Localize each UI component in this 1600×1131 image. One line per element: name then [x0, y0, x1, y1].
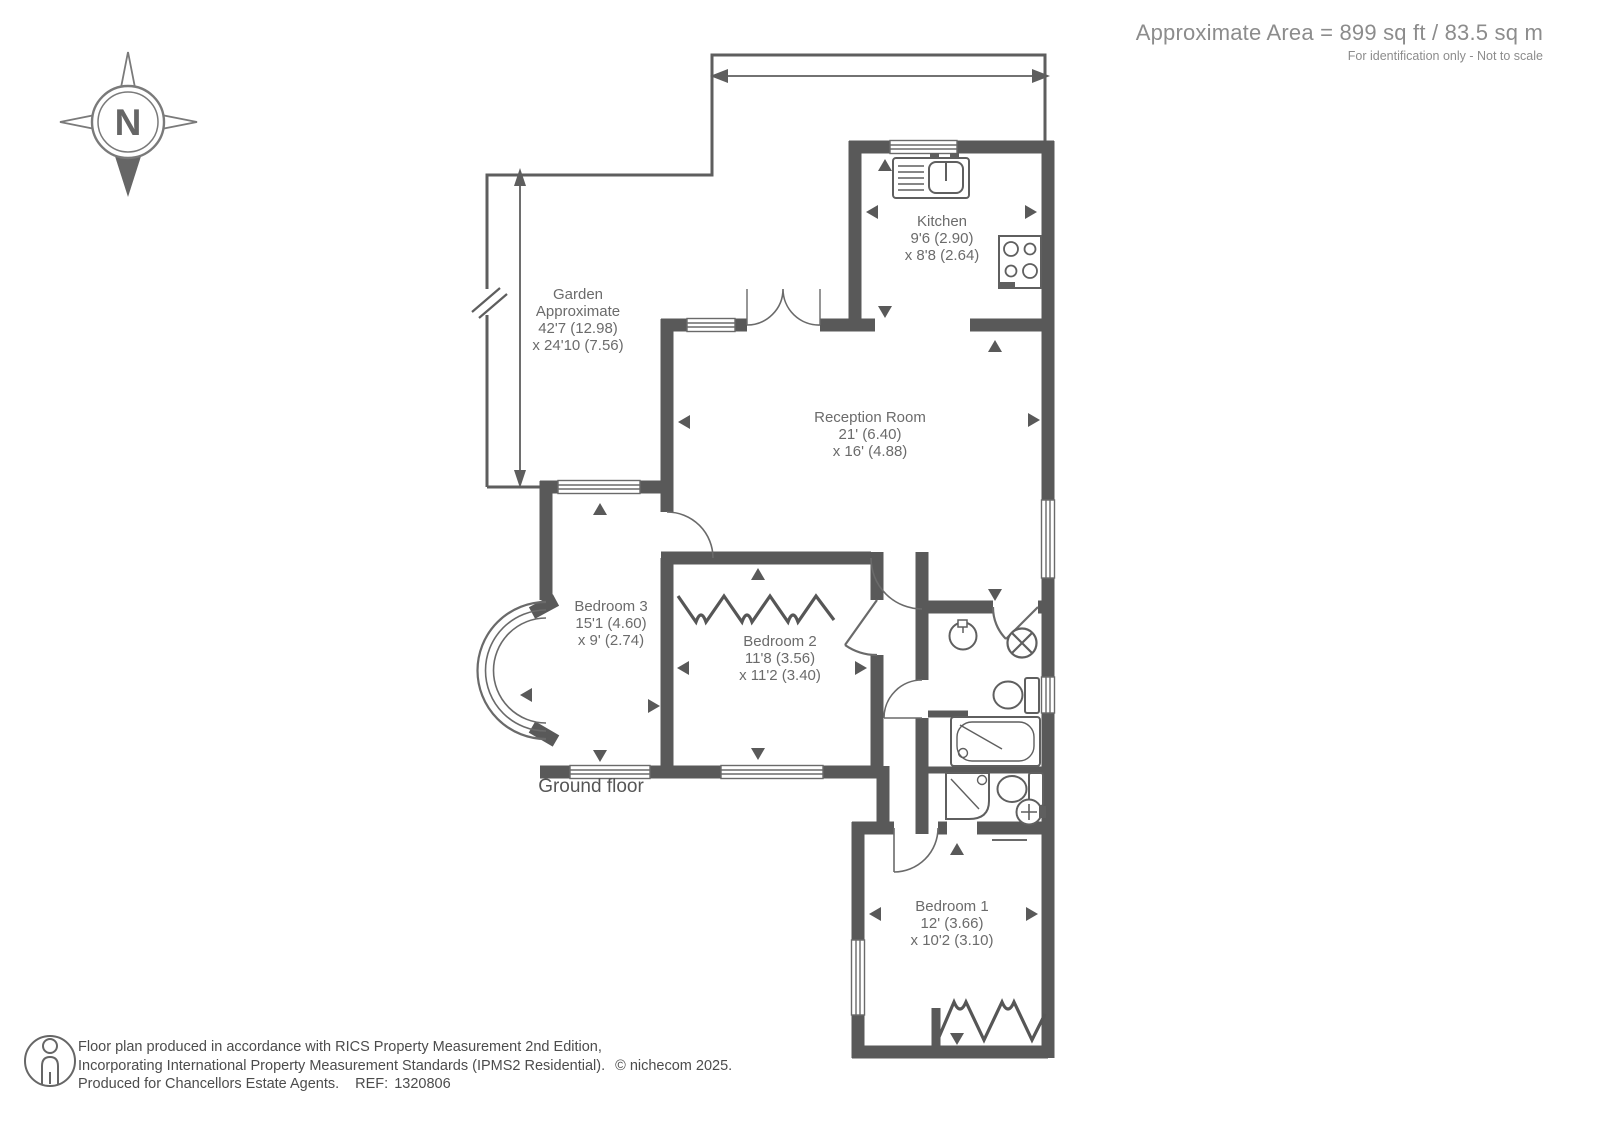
garden-label: Garden Approximate 42'7 (12.98) x 24'10 … [532, 286, 623, 354]
arrow-down-icon [950, 1033, 964, 1045]
arrow-right-icon [1028, 413, 1040, 427]
room-dim2: x 9' (2.74) [574, 632, 647, 649]
hob-icon [999, 236, 1041, 288]
bedroom2-label: Bedroom 2 11'8 (3.56) x 11'2 (3.40) [739, 633, 821, 684]
french-doors-icon [747, 289, 820, 325]
room-name: Bedroom 1 [911, 898, 994, 915]
room-dim1: 12' (3.66) [911, 915, 994, 932]
room-name: Bedroom 2 [739, 633, 821, 650]
door-arc-icon [884, 680, 922, 718]
arrow-up-icon [514, 168, 526, 186]
room-name: Reception Room [814, 409, 926, 426]
floor-title: Ground floor [538, 776, 644, 798]
room-dim1: 15'1 (4.60) [574, 615, 647, 632]
arrow-up-icon [751, 568, 765, 580]
room-dim1: 42'7 (12.98) [532, 320, 623, 337]
room-dim1: 21' (6.40) [814, 426, 926, 443]
window-icon [721, 766, 823, 779]
floorplan-drawing: N [0, 0, 1600, 1131]
footer-disclaimer: Floor plan produced in accordance with R… [78, 1038, 732, 1094]
arrow-right-icon [1026, 907, 1038, 921]
arrow-left-icon [869, 907, 881, 921]
room-dim2: x 24'10 (7.56) [532, 337, 623, 354]
kitchen-label: Kitchen 9'6 (2.90) x 8'8 (2.64) [905, 213, 980, 264]
room-dim1: 9'6 (2.90) [905, 230, 980, 247]
person-icon [25, 1036, 75, 1086]
arrow-down-icon [988, 589, 1002, 601]
ref-number: 1320806 [394, 1076, 450, 1092]
windows [558, 141, 1055, 1016]
compass-north-label: N [115, 102, 142, 143]
bedroom1-label: Bedroom 1 12' (3.66) x 10'2 (3.10) [911, 898, 994, 949]
sink-icon [893, 153, 969, 198]
arrow-up-icon [593, 503, 607, 515]
header: Approximate Area = 899 sq ft / 83.5 sq m… [1136, 20, 1543, 63]
door-arc-icon [845, 600, 877, 655]
window-icon [890, 141, 957, 154]
arrow-left-icon [520, 688, 532, 702]
disclaimer-line3: Produced for Chancellors Estate Agents. [78, 1076, 339, 1092]
room-dim2: x 11'2 (3.40) [739, 667, 821, 684]
ref-label: REF: [355, 1076, 388, 1092]
arrow-down-icon [593, 750, 607, 762]
arrow-up-icon [950, 843, 964, 855]
window-icon [558, 481, 640, 494]
room-dim1: 11'8 (3.56) [739, 650, 821, 667]
wardrobe-icon [936, 1002, 1045, 1052]
arrow-left-icon [677, 661, 689, 675]
window-icon [1042, 677, 1055, 713]
arrow-down-icon [878, 306, 892, 318]
arrow-down-icon [751, 748, 765, 760]
arrow-left-icon [866, 205, 878, 219]
room-dim2: x 10'2 (3.10) [911, 932, 994, 949]
wardrobe-icon [678, 596, 834, 622]
window-icon [687, 319, 735, 332]
window-icon [1042, 500, 1055, 578]
garden-boundary [472, 55, 1045, 487]
disclaimer-line2: Incorporating International Property Mea… [78, 1058, 605, 1074]
garden-dimension-arrows [514, 69, 1050, 488]
room-name: Kitchen [905, 213, 980, 230]
bedroom3-label: Bedroom 3 15'1 (4.60) x 9' (2.74) [574, 598, 647, 649]
reception-room-label: Reception Room 21' (6.40) x 16' (4.88) [814, 409, 926, 460]
arrow-up-icon [878, 159, 892, 171]
arrow-left-icon [678, 415, 690, 429]
room-name: Bedroom 3 [574, 598, 647, 615]
copyright-text: © nichecom 2025. [615, 1058, 732, 1074]
arrow-right-icon [648, 699, 660, 713]
approximate-area-text: Approximate Area = 899 sq ft / 83.5 sq m [1136, 20, 1543, 46]
compass-icon: N [60, 52, 197, 197]
room-name: Garden [532, 286, 623, 303]
arrow-right-icon [855, 661, 867, 675]
identification-note: For identification only - Not to scale [1136, 49, 1543, 63]
arrow-down-icon [514, 470, 526, 488]
arrow-up-icon [988, 340, 1002, 352]
basin-icon [950, 620, 977, 650]
room-qualifier: Approximate [532, 303, 623, 320]
disclaimer-line1: Floor plan produced in accordance with R… [78, 1038, 732, 1057]
toilet-icon [994, 678, 1040, 713]
door-arc-icon [894, 828, 938, 872]
bay-window-icon [478, 602, 547, 739]
door-arc-icon [667, 512, 713, 558]
arrow-right-icon [1032, 69, 1050, 83]
bath-icon [951, 717, 1040, 766]
shower-icon [946, 773, 989, 819]
extractor-icon [1008, 629, 1037, 658]
window-icon [852, 940, 865, 1015]
room-dim2: x 16' (4.88) [814, 443, 926, 460]
arrow-right-icon [1025, 205, 1037, 219]
floorplan-page: N Approximate Area = 899 sq ft / 83.5 sq… [0, 0, 1600, 1131]
room-dim2: x 8'8 (2.64) [905, 247, 980, 264]
